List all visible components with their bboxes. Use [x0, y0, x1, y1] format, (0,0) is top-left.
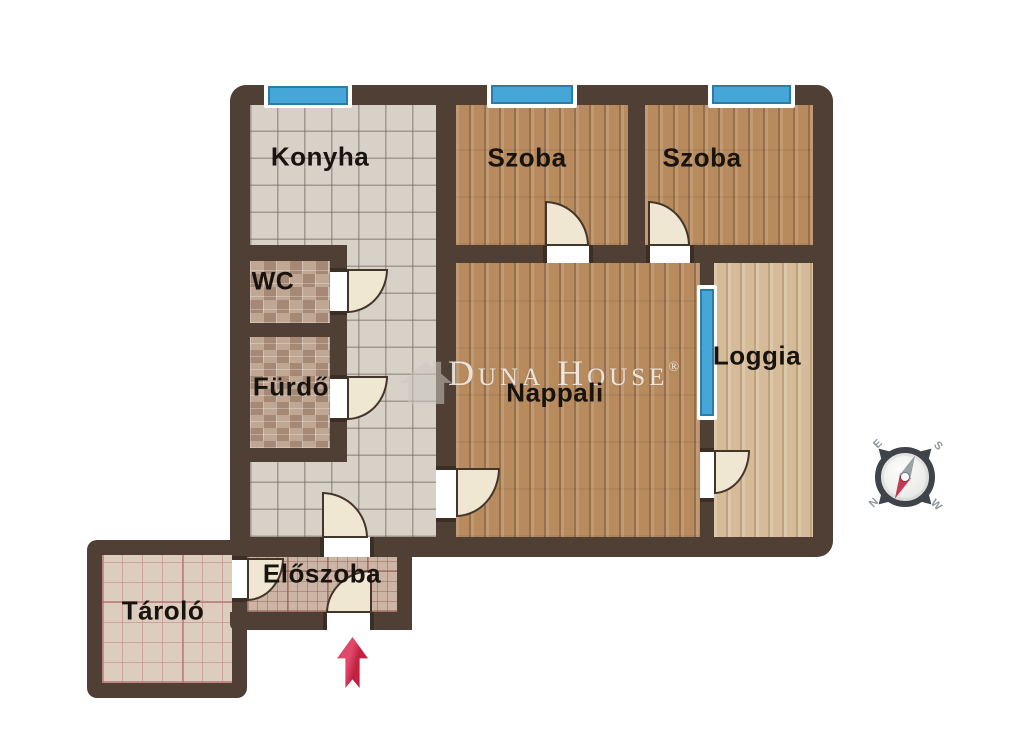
label-loggia: Loggia [713, 341, 801, 372]
window-glass [712, 85, 791, 104]
wall-rooms-living [436, 245, 833, 263]
wall-between-rooms [628, 105, 645, 245]
opening-bath-door [330, 375, 347, 422]
wall-wc-bath-divider [250, 323, 347, 337]
wall-hall-bottom [230, 612, 412, 630]
compass-letter-n: N [867, 496, 881, 510]
opening-room1-door [543, 245, 593, 263]
entrance-arrow-icon [337, 637, 368, 688]
opening-storage-door [232, 556, 247, 602]
label-eloszoba: Előszoba [263, 559, 381, 590]
opening-entrance-door [323, 612, 374, 630]
window-glass [491, 85, 573, 104]
watermark-registered: ® [668, 360, 679, 375]
window-glass [268, 86, 348, 105]
floor-plan: Duna House® Konyha Szoba Szoba WC Fürdő … [0, 0, 1024, 756]
window-room1 [487, 82, 577, 108]
opening-hall-door [320, 537, 374, 557]
opening-living-door [436, 466, 456, 522]
window-kitchen [264, 83, 352, 108]
label-szoba-2: Szoba [662, 143, 741, 174]
compass-pivot [901, 473, 909, 481]
compass-letter-e: E [871, 437, 885, 451]
opening-loggia-door [700, 448, 714, 502]
label-nappali: Nappali [506, 378, 603, 409]
compass-letter-w: W [928, 497, 944, 513]
window-room2 [708, 82, 795, 108]
compass-letter-s: S [931, 439, 945, 453]
opening-room2-door [646, 245, 694, 263]
opening-wc-door [330, 268, 347, 315]
compass-icon: E S N W [855, 427, 955, 527]
label-szoba-1: Szoba [487, 143, 566, 174]
label-wc: WC [252, 268, 295, 297]
label-tarolo: Tároló [122, 596, 204, 627]
label-furdo: Fürdő [253, 372, 329, 403]
label-konyha: Konyha [271, 142, 369, 173]
wall-bath-bottom [250, 448, 347, 462]
window-glass [700, 289, 714, 416]
